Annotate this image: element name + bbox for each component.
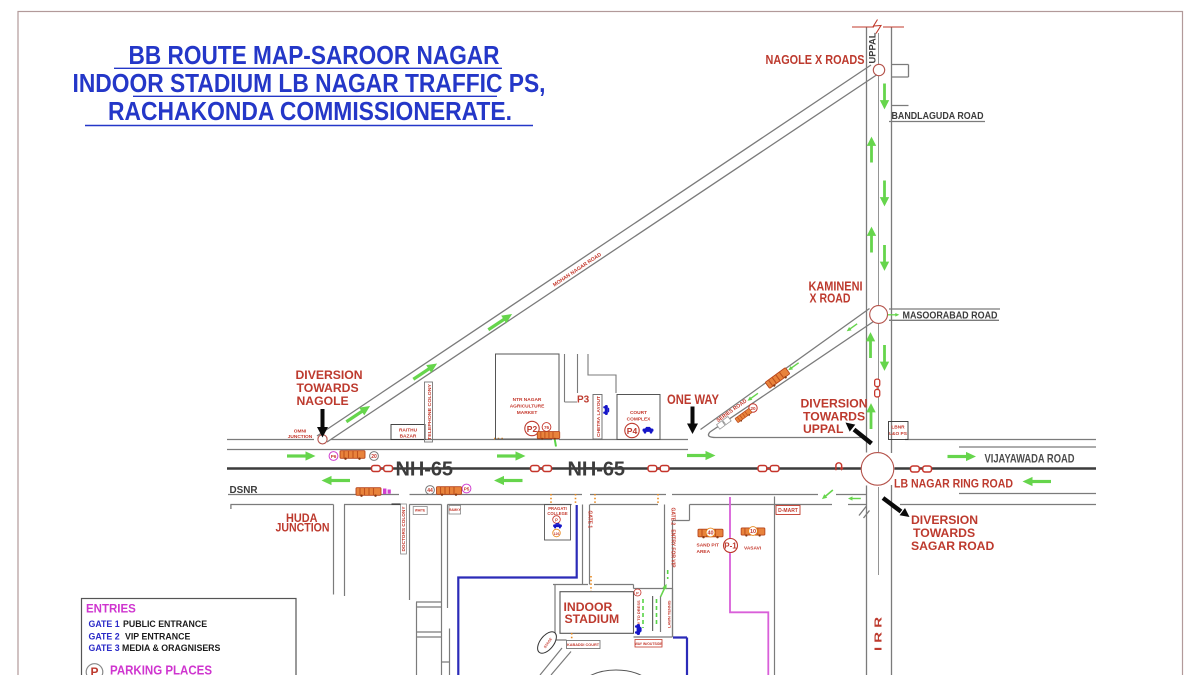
svg-text:L&O PS: L&O PS	[889, 431, 908, 437]
svg-text:MOHAN NAGAR ROAD: MOHAN NAGAR ROAD	[552, 252, 603, 289]
svg-text:20: 20	[371, 454, 377, 460]
svg-text:LB NAGAR RING ROAD: LB NAGAR RING ROAD	[894, 476, 1013, 490]
svg-text:44: 44	[427, 488, 433, 494]
svg-text:RAITHU: RAITHU	[399, 428, 418, 434]
svg-text:COMPLEX: COMPLEX	[627, 417, 652, 423]
svg-text:P2: P2	[527, 424, 538, 434]
svg-text:NAGOLE: NAGOLE	[297, 394, 349, 408]
svg-text:40: 40	[707, 531, 713, 537]
svg-text:X ROAD: X ROAD	[810, 291, 851, 305]
svg-text:126: 126	[554, 532, 560, 536]
svg-text:LAWN TENNIS: LAWN TENNIS	[667, 600, 672, 628]
svg-text:INDOOR STADIUM LB NAGAR TRAFFI: INDOOR STADIUM LB NAGAR TRAFFIC PS,	[73, 68, 546, 98]
svg-text:BB ROUTE MAP-SAROOR NAGAR: BB ROUTE MAP-SAROOR NAGAR	[129, 40, 500, 70]
svg-text:SAGAR ROAD: SAGAR ROAD	[911, 539, 994, 553]
svg-text:VASAVI: VASAVI	[744, 546, 762, 552]
svg-text:DOCTORS COLONY: DOCTORS COLONY	[401, 506, 406, 551]
svg-text:WAY IN/OUTSIDE: WAY IN/OUTSIDE	[635, 642, 663, 646]
svg-text:GATE 2 ENTRY FOR VIP: GATE 2 ENTRY FOR VIP	[670, 508, 676, 569]
svg-text:JUNCTION: JUNCTION	[288, 434, 313, 440]
svg-text:JUNCTION: JUNCTION	[276, 520, 330, 534]
svg-text:GATE 3: GATE 3	[89, 643, 120, 653]
svg-text:I R R: I R R	[873, 616, 885, 651]
svg-text:AGRICULTURE: AGRICULTURE	[510, 404, 545, 410]
svg-text:DIVERSION: DIVERSION	[801, 397, 868, 411]
svg-text:RACHAKONDA COMMISSIONERATE.: RACHAKONDA COMMISSIONERATE.	[108, 96, 512, 126]
svg-text:P4: P4	[627, 426, 638, 436]
svg-text:P-1: P-1	[724, 542, 737, 551]
svg-text:P3: P3	[577, 395, 590, 406]
svg-text:BAZAR: BAZAR	[400, 434, 417, 440]
svg-text:BANDLAGUDA ROAD: BANDLAGUDA ROAD	[892, 111, 984, 122]
svg-text:GATE 1: GATE 1	[89, 619, 120, 629]
svg-text:VIP ENTRANCE: VIP ENTRANCE	[125, 632, 190, 642]
svg-text:NAGOLE X ROADS: NAGOLE X ROADS	[766, 53, 865, 67]
svg-text:AREA: AREA	[697, 549, 711, 555]
svg-text:10: 10	[750, 529, 756, 535]
svg-text:UPPAL: UPPAL	[803, 422, 844, 436]
svg-text:GATE 2: GATE 2	[89, 632, 120, 642]
svg-text:COURT: COURT	[630, 410, 647, 416]
svg-text:COLLEGE: COLLEGE	[547, 511, 567, 516]
svg-text:OMNI: OMNI	[294, 429, 307, 435]
svg-text:STADIUM: STADIUM	[565, 612, 620, 626]
svg-text:P5: P5	[464, 486, 470, 491]
svg-text:SAND PIT: SAND PIT	[697, 543, 719, 549]
svg-text:P: P	[555, 517, 558, 522]
svg-text:P: P	[636, 590, 639, 595]
svg-text:ONE WAY: ONE WAY	[667, 392, 719, 407]
svg-text:P: P	[90, 665, 98, 675]
svg-text:WHITE: WHITE	[415, 509, 425, 513]
svg-text:TOWARDS: TOWARDS	[913, 526, 975, 540]
svg-text:76: 76	[544, 425, 550, 430]
svg-text:NH-65: NH-65	[396, 459, 454, 481]
svg-text:TELEPHONE COLONY: TELEPHONE COLONY	[427, 384, 432, 440]
svg-text:DIVERSION: DIVERSION	[911, 513, 978, 527]
svg-text:MASOORABAD ROAD: MASOORABAD ROAD	[903, 310, 998, 321]
svg-text:20: 20	[750, 406, 756, 411]
svg-text:CHETRA LAYOUT: CHETRA LAYOUT	[596, 396, 601, 437]
svg-text:DIVERSION: DIVERSION	[296, 368, 363, 382]
svg-text:ENTRIES: ENTRIES	[86, 604, 136, 616]
svg-text:LBNR: LBNR	[891, 425, 905, 431]
svg-text:RAMKY: RAMKY	[449, 508, 462, 512]
svg-text:MARKET: MARKET	[517, 410, 538, 416]
svg-text:NH-65: NH-65	[568, 459, 626, 481]
svg-text:TOWARDS: TOWARDS	[297, 381, 359, 395]
svg-text:PUBLIC ENTRANCE: PUBLIC ENTRANCE	[123, 619, 207, 629]
svg-text:D-MART: D-MART	[778, 508, 798, 514]
svg-text:NTR NAGAR: NTR NAGAR	[513, 397, 542, 403]
svg-text:GATE 1: GATE 1	[587, 511, 593, 529]
svg-text:P6: P6	[331, 454, 337, 459]
svg-text:DSNR: DSNR	[230, 484, 258, 496]
svg-text:MEDIA & ORAGNISERS: MEDIA & ORAGNISERS	[122, 643, 221, 653]
svg-text:UPPAL: UPPAL	[868, 32, 879, 63]
svg-text:SERIES ROAD: SERIES ROAD	[716, 398, 749, 424]
svg-text:KABADDI COURT: KABADDI COURT	[567, 643, 600, 647]
svg-text:PARKING PLACES: PARKING PLACES	[110, 664, 212, 675]
svg-text:VIJAYAWADA ROAD: VIJAYAWADA ROAD	[985, 454, 1075, 466]
